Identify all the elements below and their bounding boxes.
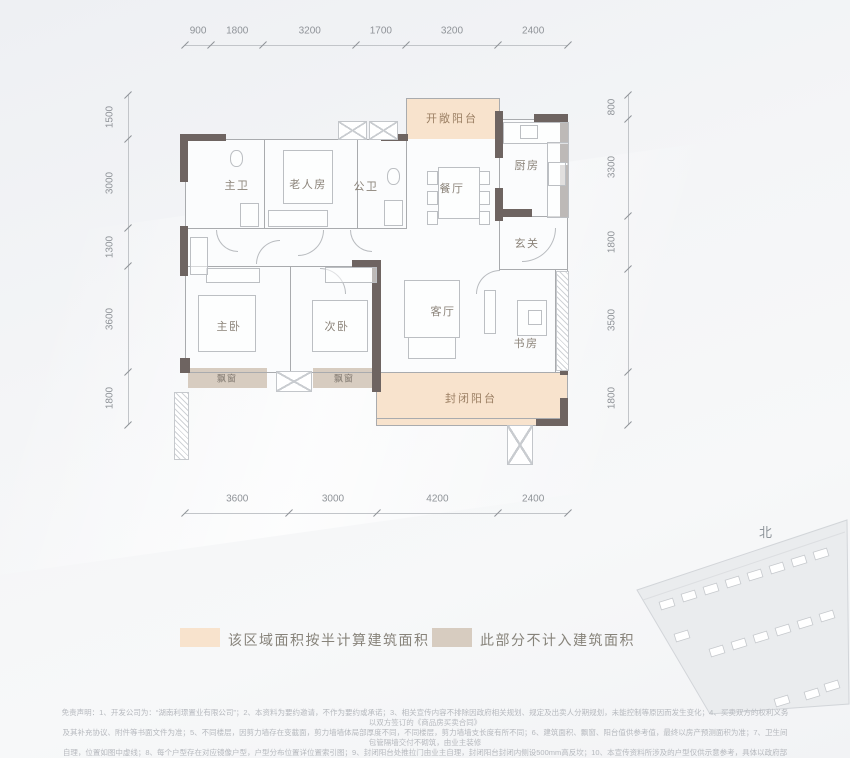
siteplan-thumbnail — [615, 512, 850, 722]
disclaimer-line-1: 免责声明：1、开发公司为：“湖南利璟置业有限公司”；2、本资料为要约邀请，不作为… — [60, 708, 790, 728]
dim-label-top: 900 — [190, 26, 207, 37]
dim-label-left: 3000 — [105, 172, 116, 194]
dim-label-left: 3600 — [105, 308, 116, 330]
disclaimer-text: 免责声明：1、开发公司为：“湖南利璟置业有限公司”；2、本资料为要约邀请，不作为… — [60, 708, 790, 758]
dim-label-right: 1800 — [607, 387, 618, 409]
dimension-annotations: 9001800320017003200240036003000420024001… — [0, 0, 850, 560]
dim-label-bottom: 2400 — [522, 494, 544, 505]
dim-line-top — [185, 45, 568, 46]
dim-label-bottom: 3600 — [226, 494, 248, 505]
dim-label-top: 2400 — [522, 26, 544, 37]
disclaimer-line-2: 及其补充协议、附件等书面文件为准；5、不同楼层，因剪力墙存在变截面，剪力墙墙体局… — [60, 728, 790, 748]
dim-label-left: 1300 — [105, 236, 116, 258]
dim-label-right: 800 — [607, 98, 618, 115]
dim-label-top: 3200 — [299, 26, 321, 37]
dim-label-bottom: 4200 — [426, 494, 448, 505]
dim-line-right — [628, 95, 629, 425]
dim-label-left: 1500 — [105, 106, 116, 128]
legend-label-half-area: 该区域面积按半计算建筑面积 — [228, 630, 430, 650]
dim-label-top: 3200 — [441, 26, 463, 37]
dim-label-right: 1800 — [607, 231, 618, 253]
dim-line-left — [128, 95, 129, 425]
dim-label-top: 1700 — [370, 26, 392, 37]
disclaimer-line-3: 自理，位置如图中虚线；8、每个户型存在对应镜像户型，户型分布位置详位置索引图；9… — [60, 748, 790, 758]
dim-label-bottom: 3000 — [322, 494, 344, 505]
floorplan-page: 开敞阳台厨房餐厅玄关主卫老人房公卫主卧次卧客厅书房封闭阳台飘窗飘窗 900180… — [0, 0, 850, 758]
legend-label-excluded-area: 此部分不计入建筑面积 — [480, 630, 635, 650]
legend-swatch-excluded-area — [432, 628, 472, 647]
legend-swatch-half-area — [180, 628, 220, 647]
dim-label-right: 3300 — [607, 156, 618, 178]
dim-label-left: 1800 — [105, 387, 116, 409]
dim-label-right: 3500 — [607, 309, 618, 331]
dim-label-top: 1800 — [226, 26, 248, 37]
